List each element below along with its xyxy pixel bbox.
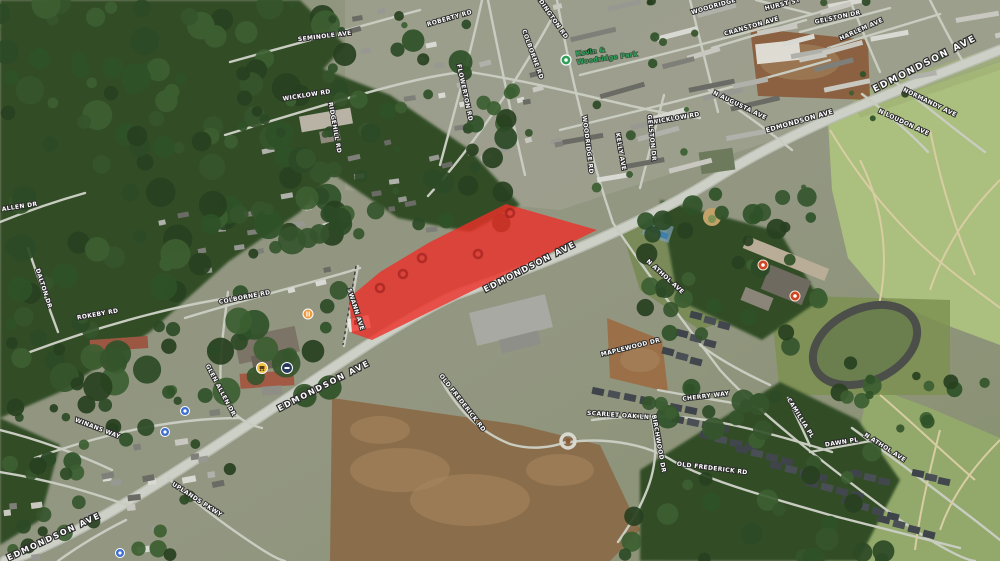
tree [86,78,97,89]
tree [79,439,89,449]
tree [333,92,347,106]
tree [743,204,764,225]
grocery-cart-icon[interactable] [257,363,268,374]
tree [329,208,352,231]
tree [127,126,147,146]
tree [395,102,407,114]
tree [225,308,252,335]
tree [320,299,335,314]
tree [146,178,175,207]
tree [665,406,678,419]
tree [801,184,806,189]
tree [164,84,179,99]
tree [732,256,745,269]
tree [619,548,631,560]
tree [92,155,110,173]
tree [778,324,794,340]
tree [328,15,336,23]
tree [224,463,236,475]
tree [392,188,399,195]
tree [160,239,190,269]
tree [238,121,248,131]
tree [262,204,274,216]
tree [198,388,213,403]
tree [637,299,654,316]
tree [189,253,212,276]
tree [493,182,514,203]
tree [702,405,715,418]
tree [740,309,756,325]
tree [691,30,698,37]
tree [663,302,678,317]
tree [16,519,31,534]
tree [131,542,145,556]
tree [844,494,863,513]
tree [438,213,453,228]
tree [333,43,356,66]
tree [355,170,368,183]
tree [626,171,633,178]
blue-poi-icon[interactable] [116,549,125,558]
tree [29,457,46,474]
tree [702,417,725,440]
tree [72,60,90,78]
tree [924,381,935,392]
tree [849,90,854,95]
tree [740,523,762,545]
transit-icon[interactable] [282,363,293,374]
tree [130,27,159,56]
tree [252,106,263,117]
tree [326,162,341,177]
tree [6,337,18,349]
tree [683,195,703,215]
tree [657,503,679,525]
tree [395,146,401,152]
tree [5,238,23,256]
tree [642,396,656,410]
building [262,385,283,395]
tree [860,71,866,77]
tree [702,493,721,512]
tree [684,107,689,112]
tree [149,111,164,126]
tree [30,329,48,347]
tree [870,115,876,121]
tree [841,471,854,484]
tree [840,390,853,403]
tree [593,101,602,110]
tree [748,394,770,416]
tree [662,325,678,341]
tree [379,102,396,119]
tree [624,507,643,526]
tree [236,67,250,81]
school-marker-icon[interactable] [758,260,768,270]
tree [119,433,133,447]
tree [235,21,257,43]
tree [52,263,78,289]
tree [401,22,407,28]
tree [772,503,785,516]
tree [150,273,177,300]
tree [164,548,177,561]
tree [417,53,429,65]
tree [482,147,503,168]
building [9,503,17,510]
tree [682,480,693,491]
tree [100,347,125,372]
tree [53,343,65,355]
tree [296,149,316,169]
baseball-infield [708,215,716,223]
roundabout-island [565,438,570,443]
tree [302,340,325,363]
tree [260,114,270,124]
tree [487,101,501,115]
tree [402,29,425,52]
tree [60,468,73,481]
tree [121,184,139,202]
tree [461,20,471,30]
map-viewport[interactable]: SEMINOLE AVEROBERTY RDADDINGTON RDWICKLO… [0,0,1000,561]
tree [677,222,694,239]
tree [133,0,151,17]
tree [699,472,713,486]
tree [36,507,51,522]
tree [121,63,151,93]
tree [47,98,58,109]
tree [458,175,478,195]
tree [253,337,278,362]
building [31,554,40,561]
blue-poi-icon[interactable] [161,428,170,437]
tree [29,48,50,69]
map-canvas[interactable]: SEMINOLE AVEROBERTY RDADDINGTON RDWICKLO… [0,0,1000,561]
tree [72,495,86,509]
tree [412,218,425,231]
building [127,504,136,511]
tree [104,86,118,100]
tree [7,399,25,417]
tree [173,397,181,405]
tree [224,135,238,149]
tree [230,205,249,224]
tree [865,374,875,384]
tree [680,148,688,156]
tree [753,421,772,440]
tree [133,229,147,243]
tree [844,356,857,369]
tree [248,249,258,259]
tree [62,413,71,422]
dirt-patch [410,474,530,526]
tree [14,307,34,327]
tree [11,348,31,368]
tree [695,327,708,340]
tree [181,8,198,25]
tree [192,132,212,152]
tree [42,136,58,152]
tree [98,398,112,412]
tree [200,214,221,235]
tree [816,527,839,550]
tree [769,391,782,404]
tree [715,206,729,220]
tree [71,377,84,390]
tree [423,89,433,99]
tree [775,190,790,205]
tree [289,2,295,8]
tree [7,277,32,302]
tree [166,322,180,336]
tree [2,456,18,472]
building [388,206,395,212]
tree [153,136,175,158]
tree [78,396,96,414]
tree [161,339,176,354]
tree [322,70,335,83]
tree [681,272,695,286]
building [207,471,215,478]
tree [361,123,381,143]
school-marker-icon[interactable] [790,291,800,301]
tree [190,439,200,449]
building [3,509,11,516]
tree [390,43,404,57]
tree [133,356,161,384]
tree [102,57,124,79]
tree [469,162,480,173]
tree [310,224,330,244]
tree [199,154,225,180]
tree [766,219,786,239]
tree [494,126,517,149]
tree [706,298,722,314]
tree [466,143,479,156]
tree [685,384,695,394]
tree [801,466,820,485]
tree [16,76,44,104]
tree [137,419,154,436]
tree [592,183,602,193]
dirt-patch [526,454,594,486]
tree [175,73,187,85]
tree [654,397,668,411]
park-ring-icon[interactable] [561,55,571,65]
tree [505,83,519,97]
tree [1,106,16,121]
dirt-patch [350,416,410,444]
tree [367,202,385,220]
tree [276,128,286,138]
tree [743,235,754,246]
tree [350,91,368,109]
tree [4,70,19,85]
tree [943,374,958,389]
tree [353,228,364,239]
blue-poi-icon[interactable] [181,407,190,416]
tree [154,524,167,537]
tree [237,90,252,105]
tree [912,372,921,381]
tree [659,38,667,46]
tree [320,322,332,334]
tree [709,188,722,201]
building [133,443,141,450]
tree [105,1,118,14]
tree [797,187,816,206]
tree [394,11,404,21]
tree [153,321,165,333]
tree [650,32,659,41]
tree [423,169,443,189]
tree [921,415,935,429]
tree [784,254,796,266]
tree [626,130,636,140]
tree [278,226,306,254]
tree [653,210,673,230]
restaurant-icon[interactable] [303,309,313,319]
tree [322,131,329,138]
tree [85,237,110,262]
tree [86,8,105,27]
tree [896,424,904,432]
tree [162,385,175,398]
tree [525,129,533,137]
tree [979,378,989,388]
tree [865,391,873,399]
tree [207,342,221,356]
tree [50,404,59,413]
tree [809,290,828,309]
tree [805,212,816,223]
tree [295,186,318,209]
tree [77,115,91,129]
tree [648,59,657,68]
